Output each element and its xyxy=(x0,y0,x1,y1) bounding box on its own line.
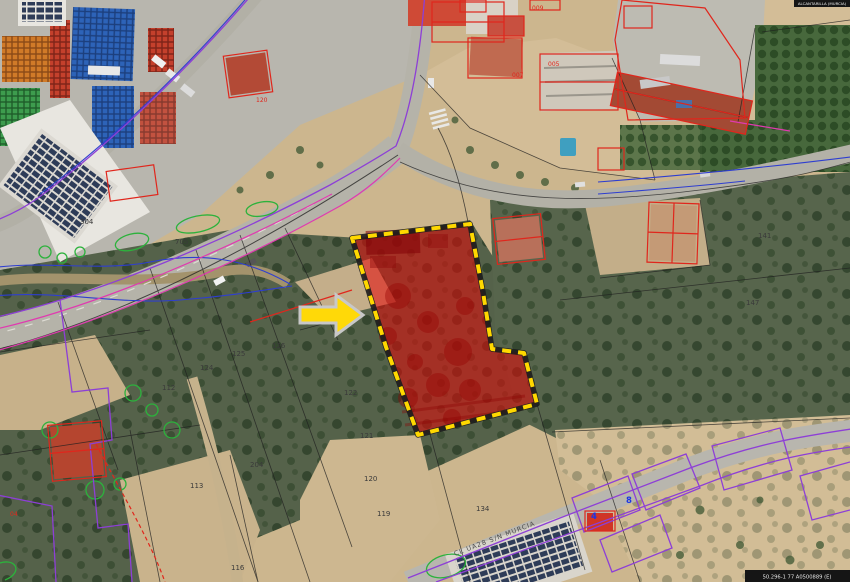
block-number: 8 xyxy=(626,496,632,506)
parcel-number: 116 xyxy=(231,564,245,572)
parcel-number: 112 xyxy=(162,384,175,392)
parcel-number: 147 xyxy=(746,299,759,307)
parcel-number: 124 xyxy=(200,364,214,372)
building-number: 007 xyxy=(512,72,524,79)
municipality-tag-text: ALCANTARILLA (MURCIA) xyxy=(798,1,847,6)
parcel-number: 119 xyxy=(377,510,390,518)
parcel-number: 113 xyxy=(190,482,203,490)
parcel-number: 134 xyxy=(476,505,490,513)
parcel-number: 121 xyxy=(360,432,373,440)
parcel-number: 304 xyxy=(80,218,94,226)
map-canvas: 304 705 125 126 124 122 121 120 119 113 … xyxy=(0,0,850,582)
building-number: 005 xyxy=(548,61,560,68)
cadastral-aerial-map: 304 705 125 126 124 122 121 120 119 113 … xyxy=(0,0,850,582)
parcel-number: 141 xyxy=(758,232,771,240)
building-number: 120 xyxy=(256,97,268,104)
building-number: 009 xyxy=(532,5,544,12)
building-number: 04 xyxy=(10,511,18,518)
parcel-number: 122 xyxy=(344,389,357,397)
parcel-number: 126 xyxy=(272,342,286,350)
parcel-number: 120 xyxy=(364,475,377,483)
sheet-reference-tag: 50.296-1 77 A0500889 (E) xyxy=(745,570,850,582)
parcel-number: 125 xyxy=(232,350,245,358)
block-number: 4 xyxy=(591,512,597,522)
parcel-number: 705 xyxy=(175,238,188,246)
sheet-reference-text: 50.296-1 77 A0500889 (E) xyxy=(763,575,832,581)
parcel-number: 204 xyxy=(250,461,264,469)
municipality-tag: ALCANTARILLA (MURCIA) xyxy=(794,0,850,7)
